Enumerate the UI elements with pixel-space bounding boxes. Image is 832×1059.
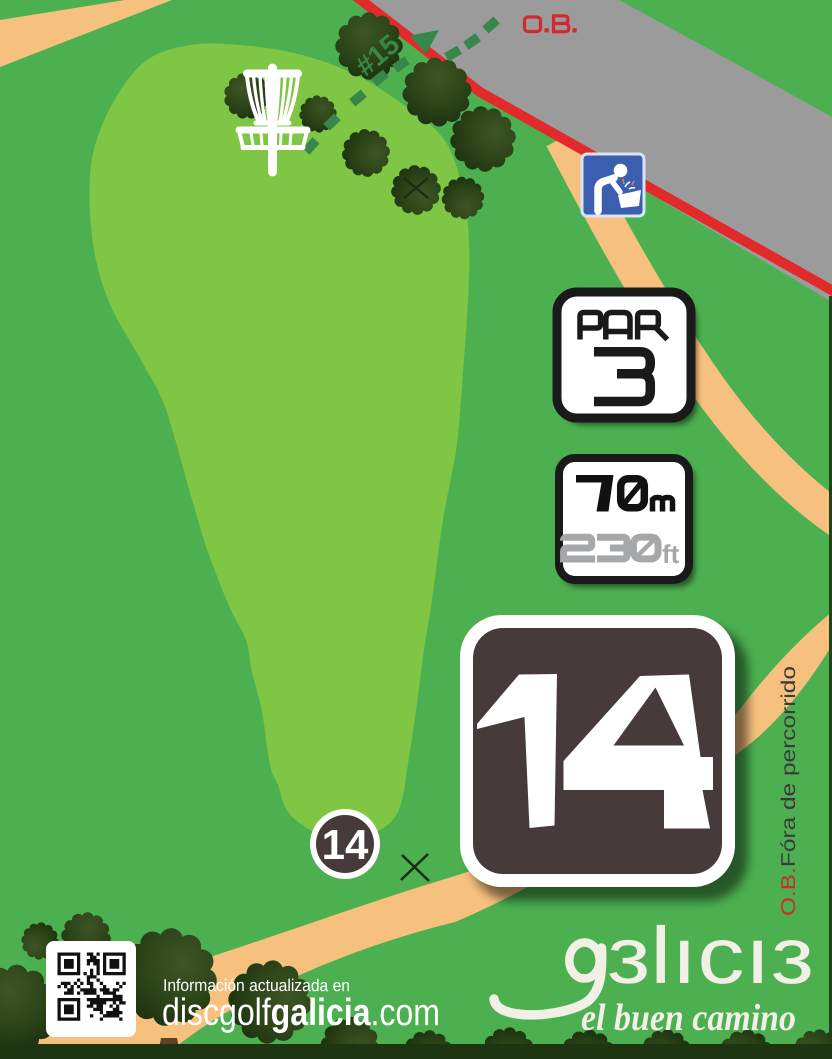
svg-text:зlıcıз: зlıcıз: [607, 911, 814, 1000]
svg-text:ft: ft: [662, 539, 680, 569]
svg-text:O.B.Fóra de percorrido: O.B.Fóra de percorrido: [778, 666, 800, 916]
svg-text:14: 14: [322, 821, 369, 868]
svg-text:discgolfgalicia.com: discgolfgalicia.com: [162, 992, 440, 1034]
svg-text:el buen camino: el buen camino: [581, 997, 796, 1039]
